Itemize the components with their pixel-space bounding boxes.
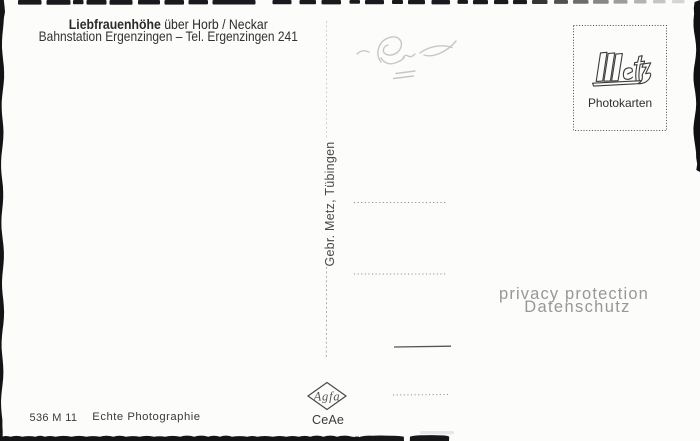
svg-text:Agfa: Agfa [313,390,341,404]
